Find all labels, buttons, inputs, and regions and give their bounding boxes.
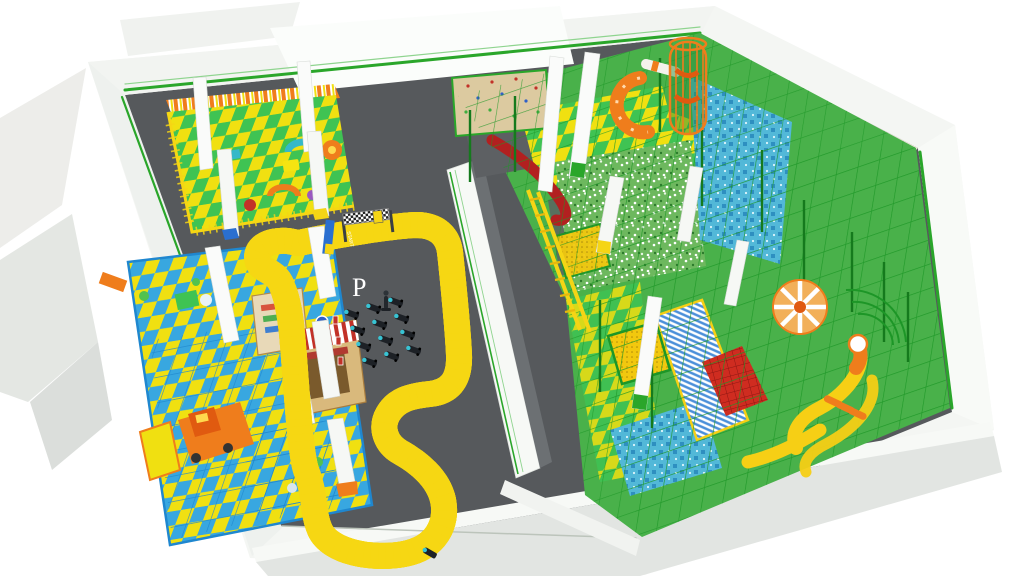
red-ball-toy <box>244 199 256 211</box>
spiral-slide-tower <box>670 38 706 134</box>
render-canvas: START P <box>0 0 1024 576</box>
column-base-blue <box>222 228 239 240</box>
gantry-sign <box>373 210 383 223</box>
column-base-yellow <box>597 240 611 254</box>
orange-ring-center <box>328 146 336 154</box>
column-base-green <box>632 394 648 410</box>
truck-wheel <box>223 443 233 453</box>
white-tube-band <box>652 66 658 68</box>
yellow-block <box>282 159 299 172</box>
carousel-umbrella <box>773 280 827 334</box>
orange-beam <box>99 272 128 292</box>
truck-wheel <box>191 453 201 463</box>
tube-porthole <box>849 335 867 353</box>
column-base-green <box>570 162 586 178</box>
parking-p-marking: P <box>352 273 366 302</box>
column-base-yellow <box>312 208 329 220</box>
blue-post-base <box>324 244 334 255</box>
playground-render: START P <box>0 0 1024 576</box>
